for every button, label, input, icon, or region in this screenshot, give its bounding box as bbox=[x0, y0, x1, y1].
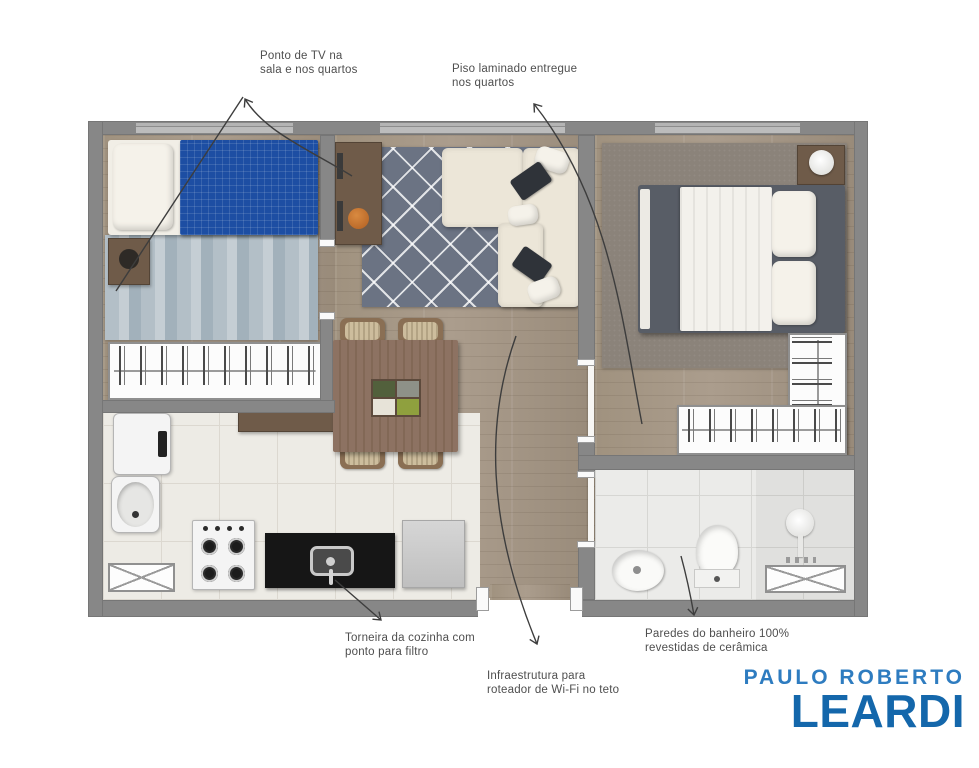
bedroom1-door-jamb bbox=[319, 239, 335, 247]
bedroom2-window bbox=[655, 123, 800, 133]
note-tv-line1: Ponto de TV na bbox=[260, 49, 358, 63]
entry-floor bbox=[490, 584, 570, 600]
washer-slot bbox=[158, 431, 167, 457]
fridge bbox=[402, 520, 465, 588]
note-tv: Ponto de TV na sala e nos quartos bbox=[260, 49, 358, 77]
kitchen-faucet bbox=[329, 569, 333, 585]
bathroom-door-jamb bbox=[577, 471, 595, 478]
note-wifi: Infraestrutura para roteador de Wi-Fi no… bbox=[487, 669, 619, 697]
table-tray bbox=[371, 379, 421, 417]
shower-head bbox=[786, 509, 814, 537]
dining-bench bbox=[238, 411, 335, 432]
note-laminate-line2: nos quartos bbox=[452, 76, 577, 90]
bedroom2-pillow-2 bbox=[772, 261, 816, 325]
note-faucet-line2: ponto para filtro bbox=[345, 645, 475, 659]
outer-wall-right bbox=[854, 121, 868, 617]
note-laminate-line1: Piso laminado entregue bbox=[452, 62, 577, 76]
bedroom2-door-jamb bbox=[577, 436, 595, 443]
bedroom2-wardrobe-horizontal bbox=[677, 405, 847, 455]
tank-drain bbox=[132, 511, 139, 518]
stove-burner bbox=[228, 538, 245, 555]
stove-knob bbox=[203, 526, 208, 531]
bathroom-door-jamb bbox=[577, 541, 595, 548]
stove-burner bbox=[201, 538, 218, 555]
bedroom1-pillow bbox=[113, 144, 173, 230]
stove-burner bbox=[201, 565, 218, 582]
toilet-button bbox=[714, 576, 720, 582]
note-faucet-line1: Torneira da cozinha com bbox=[345, 631, 475, 645]
shower-hooks bbox=[786, 557, 816, 563]
tray-plant-2 bbox=[397, 399, 419, 415]
entry-threshold bbox=[478, 598, 582, 617]
logo-main-line: LEARDI bbox=[744, 690, 965, 732]
chair-seat bbox=[403, 322, 438, 340]
bedroom2-duvet bbox=[680, 187, 772, 331]
note-faucet: Torneira da cozinha com ponto para filtr… bbox=[345, 631, 475, 659]
entry-door-jamb bbox=[570, 587, 583, 611]
wall-bedroom1-living-upper bbox=[320, 135, 335, 245]
stove bbox=[192, 520, 255, 590]
note-bathroom: Paredes do banheiro 100% revestidas de c… bbox=[645, 627, 789, 655]
tv-equipment-2 bbox=[337, 201, 343, 231]
note-bathroom-line2: revestidas de cerâmica bbox=[645, 641, 789, 655]
kitchen-reserved-space bbox=[108, 563, 175, 592]
bedroom1-window bbox=[136, 123, 293, 133]
chair-seat bbox=[345, 322, 380, 340]
living-window bbox=[380, 123, 565, 133]
tray-napkin bbox=[373, 399, 395, 415]
note-bathroom-line1: Paredes do banheiro 100% bbox=[645, 627, 789, 641]
leardi-logo: PAULO ROBERTO LEARDI bbox=[744, 666, 965, 732]
bedroom2-door-leaf bbox=[588, 365, 594, 440]
bedroom1-door-jamb bbox=[319, 312, 335, 320]
shower-stem bbox=[798, 535, 803, 557]
tray-item bbox=[397, 381, 419, 397]
note-wifi-line1: Infraestrutura para bbox=[487, 669, 619, 683]
bathroom-sink-drain bbox=[633, 566, 641, 574]
bathroom-door-leaf bbox=[588, 477, 594, 545]
bedroom2-foot-sheet bbox=[640, 189, 650, 329]
outer-wall-left bbox=[88, 121, 103, 617]
wall-bedroom2-bathroom bbox=[578, 455, 855, 470]
stove-knob bbox=[239, 526, 244, 531]
tray-plant bbox=[373, 381, 395, 397]
stove-knob bbox=[227, 526, 232, 531]
wall-hall-bedroom2-upper bbox=[578, 135, 595, 365]
wall-bedroom1-living-lower bbox=[320, 318, 333, 413]
floorplan-page: Ponto de TV na sala e nos quartos Piso l… bbox=[0, 0, 979, 768]
shower-box bbox=[765, 565, 846, 593]
bedroom2-lamp bbox=[809, 150, 834, 175]
tv-equipment bbox=[337, 153, 343, 179]
kitchen-faucet-base bbox=[326, 557, 335, 566]
tank-basin bbox=[117, 482, 154, 527]
note-wifi-line2: roteador de Wi-Fi no teto bbox=[487, 683, 619, 697]
bedroom2-door-jamb bbox=[577, 359, 595, 366]
decor-bowl bbox=[348, 208, 369, 229]
stove-burner bbox=[228, 565, 245, 582]
stove-knob bbox=[215, 526, 220, 531]
floorplan bbox=[88, 121, 868, 617]
wall-bedroom1-kitchen bbox=[88, 400, 335, 413]
entry-door-jamb bbox=[476, 587, 489, 611]
toilet-bowl bbox=[696, 525, 738, 575]
bedroom1-blue-blanket bbox=[180, 140, 318, 235]
bedroom2-pillow-1 bbox=[772, 191, 816, 257]
note-laminate: Piso laminado entregue nos quartos bbox=[452, 62, 577, 90]
bedroom1-nightstand-bowl bbox=[119, 249, 139, 269]
bedroom1-wardrobe bbox=[108, 342, 322, 400]
note-tv-line2: sala e nos quartos bbox=[260, 63, 358, 77]
